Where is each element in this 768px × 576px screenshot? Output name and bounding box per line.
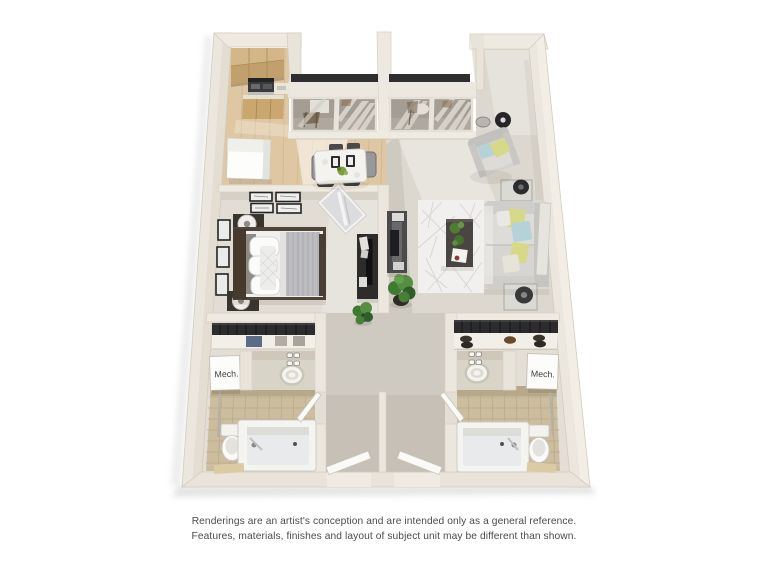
svg-text:Mech.: Mech. xyxy=(214,369,238,380)
svg-text:Mech.: Mech. xyxy=(531,369,555,380)
